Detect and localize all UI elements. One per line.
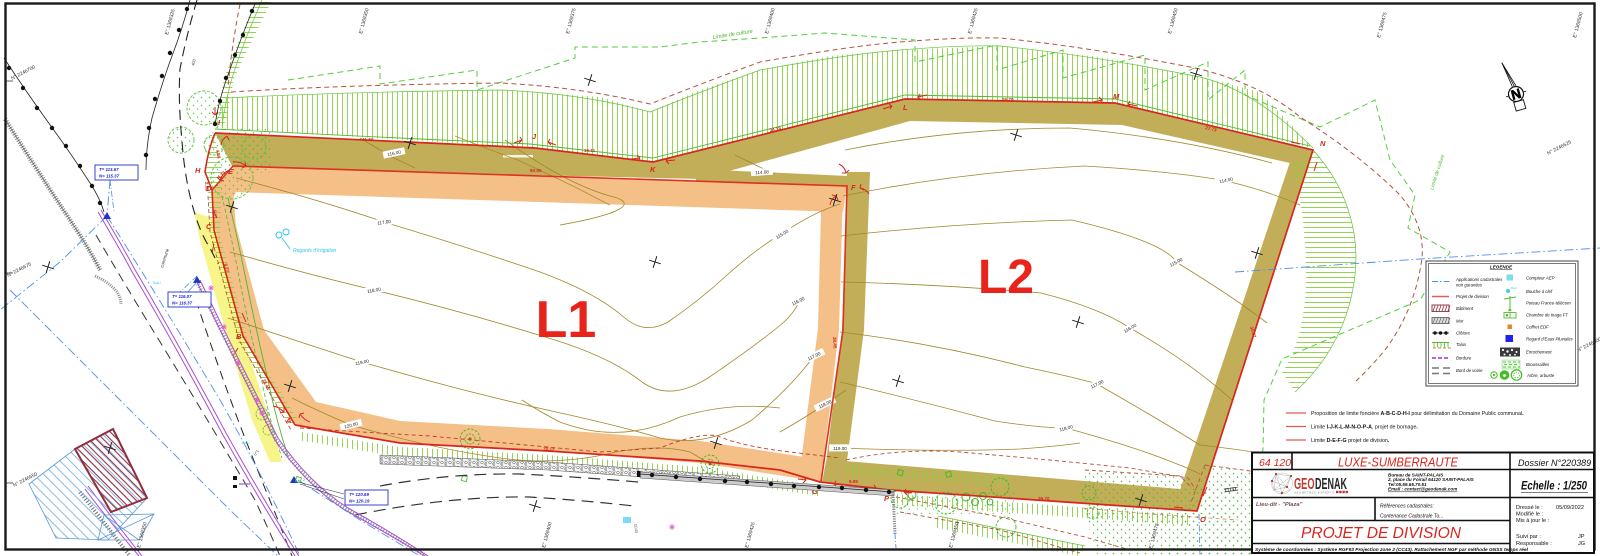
svg-text:Regard d'Eaux Pluviales: Regard d'Eaux Pluviales bbox=[1526, 337, 1574, 342]
svg-text:Clôture: Clôture bbox=[1456, 331, 1470, 336]
svg-text:Bordure: Bordure bbox=[1456, 356, 1472, 361]
svg-text:Responsable :: Responsable : bbox=[1516, 541, 1552, 547]
svg-text:Mis à jour le :: Mis à jour le : bbox=[1516, 518, 1550, 524]
svg-text:Broussailles: Broussailles bbox=[1526, 362, 1550, 367]
svg-text:Regards d'irrigation: Regards d'irrigation bbox=[293, 248, 336, 254]
svg-text:Mur: Mur bbox=[1456, 319, 1464, 324]
svg-text:F: F bbox=[851, 183, 856, 192]
svg-text:L1: L1 bbox=[536, 291, 597, 349]
svg-text:GEOMETRES-EXPERTS: GEOMETRES-EXPERTS bbox=[1294, 491, 1334, 495]
svg-text:Poteau France-télécom: Poteau France-télécom bbox=[1526, 301, 1571, 306]
svg-text:M: M bbox=[1113, 92, 1120, 101]
svg-text:N= 116.37: N= 116.37 bbox=[172, 301, 193, 306]
svg-text:Echelle : 1/250: Echelle : 1/250 bbox=[1521, 479, 1587, 493]
svg-text:Lieu-dit - "Plaza": Lieu-dit - "Plaza" bbox=[1256, 502, 1303, 508]
svg-text:FT: FT bbox=[1508, 309, 1512, 313]
svg-text:Références cadastrales:: Références cadastrales: bbox=[1380, 504, 1435, 510]
svg-text:38.45: 38.45 bbox=[832, 337, 838, 349]
svg-text:Talus: Talus bbox=[1456, 342, 1467, 347]
svg-text:05/09/2022: 05/09/2022 bbox=[1556, 505, 1584, 511]
svg-text:K: K bbox=[650, 165, 656, 174]
svg-text:H: H bbox=[195, 166, 201, 175]
svg-text:80.85: 80.85 bbox=[530, 168, 542, 173]
svg-text:JP: JP bbox=[1578, 534, 1585, 540]
svg-text:Bâtiment: Bâtiment bbox=[1456, 306, 1474, 311]
svg-text:L: L bbox=[903, 103, 908, 112]
svg-text:O: O bbox=[1200, 515, 1206, 524]
svg-text:41.69: 41.69 bbox=[362, 137, 374, 142]
svg-text:T= 116.07: T= 116.07 bbox=[172, 294, 192, 299]
svg-text:LEGENDE: LEGENDE bbox=[1490, 265, 1513, 270]
svg-text:BaU: BaU bbox=[153, 280, 161, 285]
svg-text:LUXE-SUMBERRAUTE: LUXE-SUMBERRAUTE bbox=[1338, 456, 1459, 470]
svg-text:B: B bbox=[236, 332, 242, 341]
svg-text:26.70: 26.70 bbox=[1002, 97, 1014, 102]
svg-text:Contenance Cadastrale To...: Contenance Cadastrale To... bbox=[1380, 514, 1443, 520]
svg-text:Email : contact@geodenak.com: Email : contact@geodenak.com bbox=[1388, 487, 1457, 492]
svg-text:Projet de division: Projet de division bbox=[1456, 294, 1489, 299]
svg-text:Applications cadastrales: Applications cadastrales bbox=[1455, 277, 1503, 282]
svg-text:Chambre de tirage FT: Chambre de tirage FT bbox=[1526, 313, 1568, 318]
svg-text:Arbre, arbuste: Arbre, arbuste bbox=[1526, 373, 1555, 378]
svg-text:BaU: BaU bbox=[242, 440, 250, 445]
svg-text:Proposition de limite foncière: Proposition de limite foncière A-B-C-D-H… bbox=[1311, 411, 1524, 417]
svg-text:Dossier N°220389: Dossier N°220389 bbox=[1518, 458, 1591, 468]
svg-text:Bouche à clef: Bouche à clef bbox=[1526, 289, 1553, 294]
svg-text:Système de coordonnées : Systè: Système de coordonnées : Système RGF93 P… bbox=[1255, 547, 1529, 553]
svg-text:Limite D-E-F-G projet de divi: Limite D-E-F-G projet de division. bbox=[1311, 438, 1390, 444]
svg-text:64 120: 64 120 bbox=[1259, 457, 1291, 469]
svg-text:2.98: 2.98 bbox=[204, 182, 210, 192]
svg-text:BaU: BaU bbox=[1511, 286, 1517, 290]
svg-text:Compteur AEP: Compteur AEP bbox=[1526, 276, 1555, 281]
svg-text:N= 120.19: N= 120.19 bbox=[349, 499, 370, 504]
svg-text:JG: JG bbox=[1578, 541, 1585, 547]
svg-text:Limite I-J-K-L-M-N-O-P-A, proj: Limite I-J-K-L-M-N-O-P-A, projet de born… bbox=[1311, 425, 1418, 431]
svg-text:T= 113.67: T= 113.67 bbox=[99, 167, 119, 172]
svg-text:N: N bbox=[1320, 139, 1326, 148]
svg-text:T= 120.69: T= 120.69 bbox=[349, 492, 369, 497]
svg-text:9.89: 9.89 bbox=[849, 479, 858, 484]
svg-text:non garanties: non garanties bbox=[1456, 283, 1483, 288]
svg-text:Dressé le :: Dressé le : bbox=[1516, 505, 1543, 511]
svg-text:2: 2 bbox=[303, 478, 305, 482]
svg-text:119.00: 119.00 bbox=[833, 446, 847, 451]
svg-text:L2: L2 bbox=[978, 251, 1034, 304]
svg-text:PROJET DE DIVISION: PROJET DE DIVISION bbox=[1301, 525, 1461, 542]
svg-text:39.70: 39.70 bbox=[1038, 496, 1050, 501]
svg-text:C: C bbox=[206, 222, 212, 231]
svg-text:5.11: 5.11 bbox=[212, 210, 218, 220]
svg-text:Enrochement: Enrochement bbox=[1526, 350, 1552, 355]
svg-text:Bord de voirie: Bord de voirie bbox=[1456, 368, 1483, 373]
svg-text:N= 115.37: N= 115.37 bbox=[99, 174, 120, 179]
svg-text:Suivi par :: Suivi par : bbox=[1516, 534, 1541, 540]
svg-text:A: A bbox=[285, 416, 291, 425]
svg-text:114.08: 114.08 bbox=[755, 169, 769, 175]
svg-text:Coffret EDF: Coffret EDF bbox=[1526, 325, 1549, 330]
svg-text:16.11: 16.11 bbox=[584, 148, 596, 153]
svg-text:Modifié le :: Modifié le : bbox=[1516, 512, 1543, 518]
